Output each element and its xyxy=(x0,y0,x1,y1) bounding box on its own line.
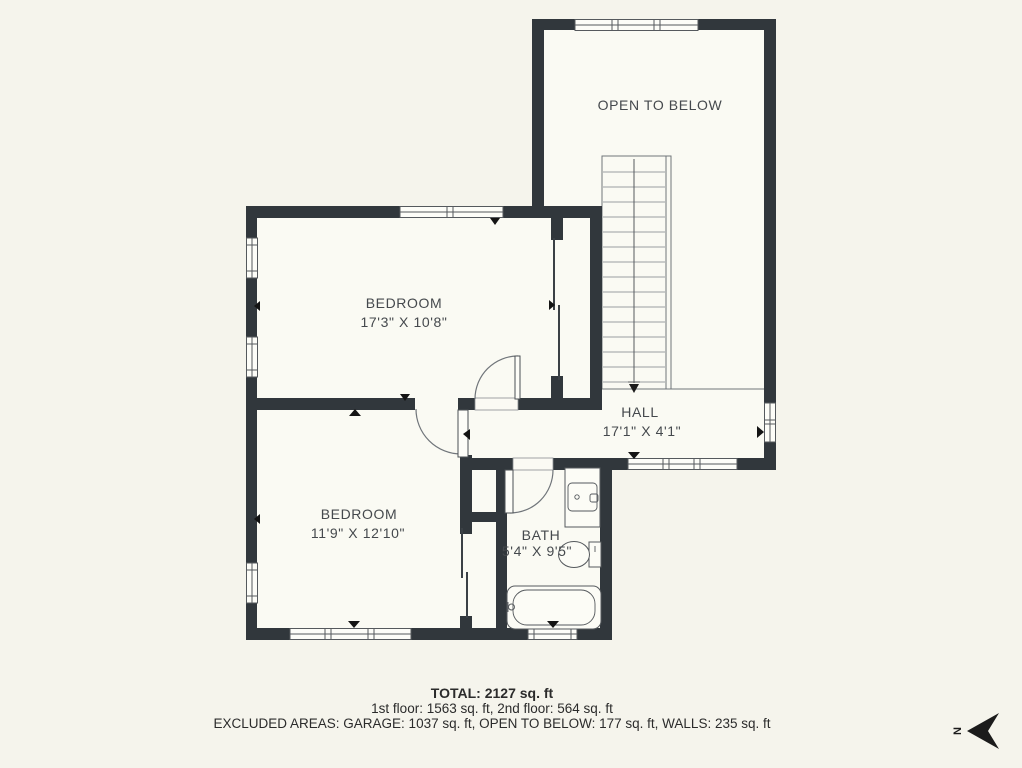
window-bedroom1-top xyxy=(400,207,503,218)
summary-total: TOTAL: 2127 sq. ft xyxy=(0,686,984,701)
floorplan-canvas: OPEN TO BELOW BEDROOM 17'3" X 10'8" HALL… xyxy=(0,0,1022,768)
label-hall: HALL xyxy=(621,404,658,420)
window-bedroom1-left-upper xyxy=(247,238,258,278)
label-bath-dims: 5'4" X 9'5" xyxy=(502,543,572,559)
window-hall-right xyxy=(765,403,776,442)
label-bedroom1-dims: 17'3" X 10'8" xyxy=(361,314,448,330)
summary-floors: 1st floor: 1563 sq. ft, 2nd floor: 564 s… xyxy=(0,701,984,716)
window-open-below-top xyxy=(575,20,698,31)
label-bedroom1: BEDROOM xyxy=(366,295,443,311)
window-bedroom1-left-lower xyxy=(247,337,258,377)
floor-plan-drawing: OPEN TO BELOW BEDROOM 17'3" X 10'8" HALL… xyxy=(0,0,1022,768)
label-open-to-below: OPEN TO BELOW xyxy=(598,97,723,113)
label-bath: BATH xyxy=(522,527,561,543)
window-hall-bottom xyxy=(628,459,737,470)
vanity-sink xyxy=(565,468,600,527)
summary-excluded: EXCLUDED AREAS: GARAGE: 1037 sq. ft, OPE… xyxy=(0,716,984,731)
label-hall-dims: 17'1" X 4'1" xyxy=(603,423,682,439)
window-bedroom2-left xyxy=(247,563,258,603)
doorway-gap xyxy=(415,398,458,410)
label-bedroom2-dims: 11'9" X 12'10" xyxy=(311,525,405,541)
window-bedroom2-bottom xyxy=(290,629,411,640)
label-bedroom2: BEDROOM xyxy=(321,506,398,522)
area-summary: TOTAL: 2127 sq. ft 1st floor: 1563 sq. f… xyxy=(0,686,984,732)
window-bath-bottom xyxy=(528,629,577,640)
